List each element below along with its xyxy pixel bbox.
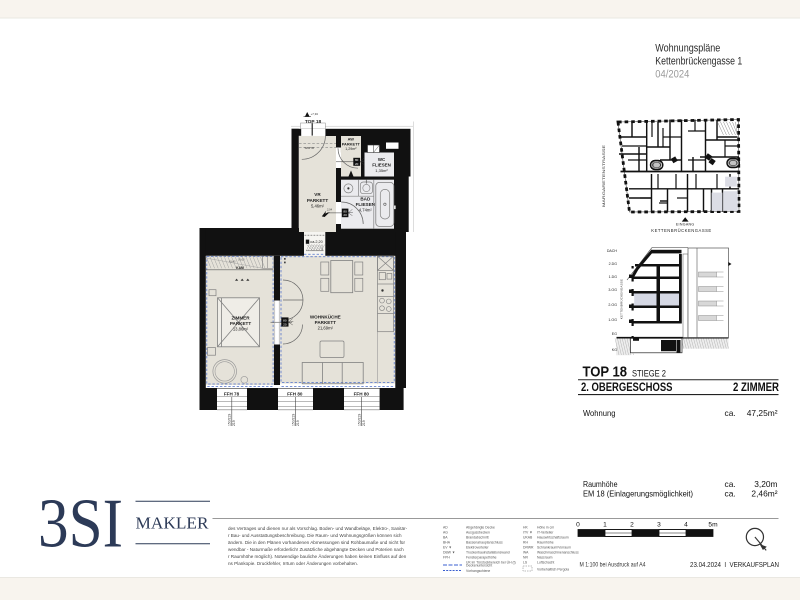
svg-text:FFH 80: FFH 80 [354, 392, 370, 397]
svg-text:WA: WA [523, 551, 529, 555]
svg-text:Schrankraum/Vorraum: Schrankraum/Vorraum [537, 546, 571, 550]
svg-text:20: 20 [355, 162, 359, 166]
svg-text:EG: EG [612, 332, 617, 336]
svg-text:3: 3 [657, 521, 661, 528]
svg-text:ca.2,20: ca.2,20 [310, 240, 322, 244]
svg-text:1.DG: 1.DG [609, 275, 618, 279]
svg-text:3SI: 3SI [38, 486, 123, 563]
svg-text:BAD: BAD [360, 196, 371, 201]
svg-text:HK: HK [523, 526, 528, 530]
svg-text:KAM: KAM [236, 266, 244, 270]
svg-text:Vorbehaltlich Pergola: Vorbehaltlich Pergola [537, 568, 569, 572]
svg-text:DBW ▼: DBW ▼ [443, 551, 455, 555]
svg-text:45x45: 45x45 [229, 261, 236, 264]
svg-text:ca.: ca. [725, 408, 736, 418]
svg-text:1,29m²: 1,29m² [345, 147, 357, 151]
svg-text:ZIMMER: ZIMMER [231, 315, 250, 320]
svg-text:Ausgussbecken: Ausgussbecken [466, 531, 490, 535]
svg-text:219: 219 [296, 420, 300, 426]
svg-text:RH: RH [523, 541, 528, 545]
svg-text:KG: KG [612, 348, 617, 352]
svg-text:04/2024: 04/2024 [655, 69, 689, 81]
svg-text:PARKETT: PARKETT [230, 321, 252, 326]
svg-text:r Bau- und Ausstattungsbeschre: r Bau- und Ausstattungsbeschreibung. Die… [228, 533, 402, 538]
svg-text:2.OG: 2.OG [608, 303, 617, 307]
svg-text:Brandabschnitt: Brandabschnitt [466, 536, 489, 540]
svg-text:+7,94: +7,94 [311, 112, 319, 116]
svg-text:STIEGE 2: STIEGE 2 [632, 369, 666, 379]
svg-text:5m: 5m [708, 521, 718, 528]
svg-text:Raumhöhe: Raumhöhe [583, 479, 618, 489]
svg-text:IT-Verteiler: IT-Verteiler [537, 531, 554, 535]
svg-text:20: 20 [283, 323, 287, 327]
svg-text:EINGANG: EINGANG [676, 223, 695, 227]
svg-text:VR: VR [314, 192, 321, 197]
svg-text:13,86m²: 13,86m² [233, 327, 249, 332]
svg-text:AD: AD [443, 526, 448, 530]
svg-text:1,35m²: 1,35m² [375, 168, 388, 173]
svg-text:ändern. Die in den Plänen vorh: ändern. Die in den Plänen vorhandenen Ab… [228, 540, 405, 545]
svg-text:WOHNKÜCHE: WOHNKÜCHE [310, 314, 341, 320]
svg-text:2,46m²: 2,46m² [751, 489, 777, 499]
svg-text:4: 4 [684, 521, 688, 528]
svg-text:3,20m: 3,20m [754, 479, 777, 489]
svg-text:Luftschacht: Luftschacht [537, 561, 554, 565]
svg-text:PARKETT: PARKETT [315, 320, 337, 325]
svg-text:ca.: ca. [725, 479, 736, 489]
svg-text:BHA: BHA [443, 541, 451, 545]
svg-text:Vorhangschiene: Vorhangschiene [466, 569, 490, 573]
svg-text:UKAB: UKAB [523, 536, 533, 540]
svg-text:2: 2 [630, 521, 634, 528]
svg-text:WC: WC [378, 157, 386, 162]
svg-text:1: 1 [603, 521, 607, 528]
svg-text:23.04.2024 I VERKAUFSPLAN: 23.04.2024 I VERKAUFSPLAN [690, 560, 779, 569]
svg-text:BA: BA [443, 536, 448, 540]
svg-text:Wohnungspläne: Wohnungspläne [655, 43, 720, 55]
svg-text:2.DG: 2.DG [609, 262, 618, 266]
svg-text:4,74m²: 4,74m² [359, 207, 373, 212]
svg-text:WM/TR: WM/TR [305, 146, 314, 150]
svg-text:2. OBERGESCHOSS: 2. OBERGESCHOSS [581, 380, 673, 394]
svg-text:M 1:100 bei Ausdruck auf A4: M 1:100 bei Ausdruck auf A4 [580, 562, 646, 569]
svg-text:21,69m²: 21,69m² [318, 325, 334, 330]
svg-text:Raumhöhe: Raumhöhe [537, 541, 554, 545]
svg-text:5,46m²: 5,46m² [311, 203, 325, 208]
svg-text:r Raumhöhe möglich). Notwendig: r Raumhöhe möglich). Notwendige bauliche… [228, 553, 407, 559]
svg-text:Deckenuntersicht: Deckenuntersicht [466, 564, 492, 568]
svg-text:PARKETT: PARKETT [342, 141, 361, 146]
svg-text:150/219: 150/219 [228, 414, 232, 426]
svg-text:MARGARETENSTRASSE: MARGARETENSTRASSE [602, 144, 606, 207]
svg-text:Wohnung: Wohnung [583, 408, 616, 418]
svg-text:20: 20 [343, 213, 347, 217]
svg-text:LS: LS [523, 561, 528, 565]
svg-text:Bassenahauptanschluss: Bassenahauptanschluss [466, 541, 503, 545]
svg-text:KETTENBRÜCKENGASSE: KETTENBRÜCKENGASSE [620, 279, 624, 319]
svg-text:Abgehängte Decke: Abgehängte Decke [466, 526, 495, 530]
svg-text:des Vertrages und dienen nur a: des Vertrages und dienen nur als Vorschl… [228, 526, 408, 531]
svg-text:TOP 18: TOP 18 [305, 119, 322, 125]
svg-text:30x30: 30x30 [238, 259, 245, 262]
svg-text:Trockenbauinstallationswand: Trockenbauinstallationswand [466, 551, 510, 555]
svg-text:ITV ▼: ITV ▼ [523, 531, 533, 535]
svg-text:3.OG: 3.OG [608, 288, 617, 292]
svg-text:Waschmaschinenanschluss: Waschmaschinenanschluss [537, 551, 579, 555]
svg-text:wendbar - Naturmaße erforderli: wendbar - Naturmaße erforderlich! Zusätz… [228, 547, 404, 552]
svg-text:FFH 80: FFH 80 [287, 392, 303, 397]
svg-text:Fensterparapethöhe: Fensterparapethöhe [466, 556, 497, 560]
svg-text:Höhe in cm: Höhe in cm [537, 526, 554, 530]
svg-text:AG: AG [443, 531, 448, 535]
svg-text:ca.: ca. [725, 489, 736, 499]
svg-text:1.OG: 1.OG [608, 318, 617, 322]
svg-text:219: 219 [362, 420, 366, 426]
svg-text:EV ▼: EV ▼ [443, 546, 452, 550]
svg-text:FLIESEN: FLIESEN [356, 202, 376, 207]
svg-text:150/219: 150/219 [357, 414, 361, 426]
svg-text:2 ZIMMER: 2 ZIMMER [733, 380, 779, 394]
svg-text:NR: NR [523, 556, 528, 560]
svg-text:219: 219 [232, 420, 236, 426]
svg-text:FPH: FPH [443, 556, 450, 560]
svg-text:KETTENBRÜCKENGASSE: KETTENBRÜCKENGASSE [651, 228, 711, 233]
svg-text:FLIESEN: FLIESEN [372, 163, 391, 168]
svg-text:DACH: DACH [607, 249, 618, 253]
svg-text:2,04: 2,04 [327, 207, 333, 211]
svg-text:0: 0 [576, 521, 580, 528]
svg-text:DRWR: DRWR [523, 546, 534, 550]
svg-text:FFH 78: FFH 78 [224, 392, 240, 397]
svg-text:PARKETT: PARKETT [307, 198, 329, 203]
svg-text:TOP 18: TOP 18 [583, 364, 628, 381]
svg-text:Hauswirtschaftsraum: Hauswirtschaftsraum [537, 536, 569, 540]
svg-text:Kettenbrückengasse 1: Kettenbrückengasse 1 [655, 56, 742, 68]
svg-text:ns Plankopie. Druckfehler, Irr: ns Plankopie. Druckfehler, Irrtum oder Ä… [228, 560, 358, 566]
svg-text:MAKLER: MAKLER [136, 514, 210, 533]
svg-text:Nassraum: Nassraum [537, 556, 553, 560]
svg-text:Elektroverteiler: Elektroverteiler [466, 546, 489, 550]
svg-text:EM 18 (Einlagerungsmöglichkeit: EM 18 (Einlagerungsmöglichkeit) [583, 489, 693, 499]
svg-text:150/219: 150/219 [291, 414, 295, 426]
svg-text:47,25m²: 47,25m² [747, 408, 778, 418]
